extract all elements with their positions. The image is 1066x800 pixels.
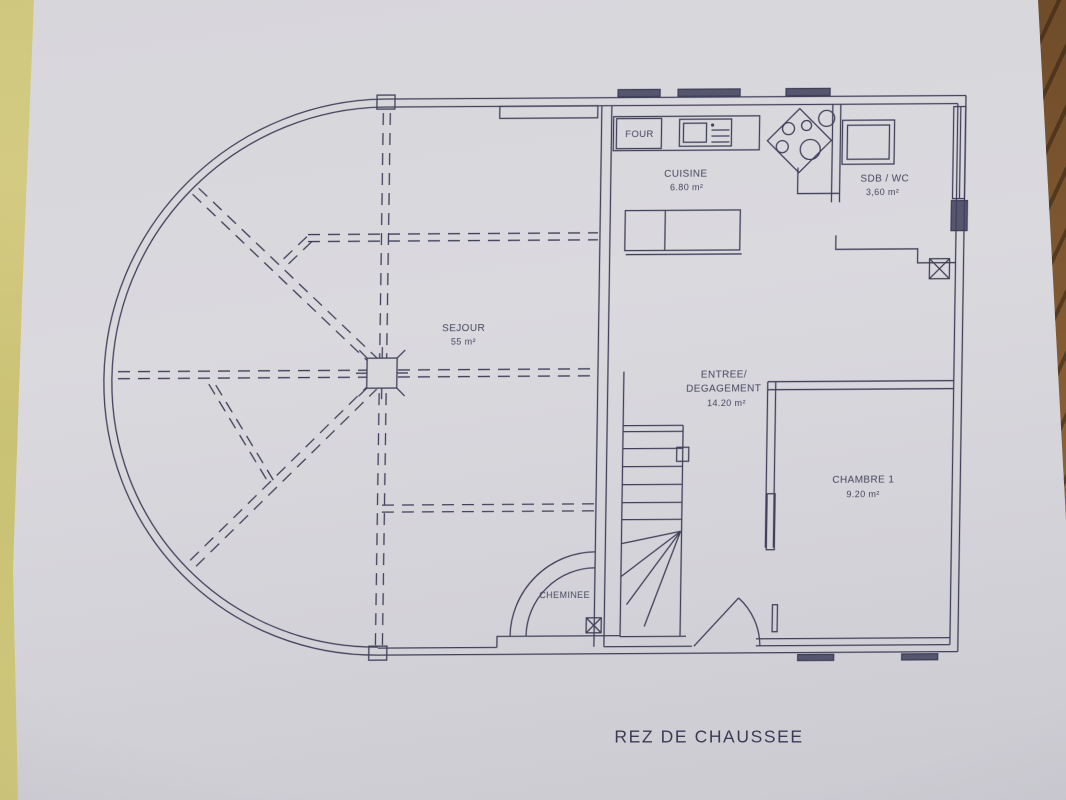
- room-label-sejour: SEJOUR: [442, 323, 485, 334]
- annotation-cheminee: CHEMINEE: [539, 590, 590, 600]
- kitchen-return-wall: [798, 167, 840, 193]
- shower-tray: [842, 120, 895, 164]
- bathroom-fixtures: [818, 110, 895, 164]
- kitchen-counter-low: [625, 210, 741, 251]
- room-label-cuisine: CUISINE: [664, 169, 708, 180]
- window-bar-bottom-2: [902, 654, 938, 660]
- interior-walls: [594, 104, 958, 647]
- staircase: [620, 371, 690, 636]
- window-bar-bottom-1: [798, 654, 834, 660]
- window-bar-top-1: [618, 89, 660, 96]
- annotation-four: FOUR: [625, 129, 654, 140]
- sink-icon: [679, 119, 731, 146]
- room-label-chambre1: CHAMBRE 1: [832, 474, 894, 485]
- beam-grid: [114, 112, 600, 647]
- room-area-cuisine: 6.80 m²: [670, 182, 703, 192]
- room-area-entree: 14.20 m²: [707, 398, 746, 408]
- doors: [694, 494, 779, 647]
- x-marker-right-wall: [929, 259, 949, 279]
- floor-plan-paper: SEJOUR 55 m² CUISINE 6.80 m² SDB / WC 3,…: [0, 0, 1066, 800]
- exterior-walls: [100, 92, 966, 662]
- right-wall-sill: [951, 201, 967, 231]
- central-post: [356, 347, 409, 399]
- room-area-chambre1: 9.20 m²: [846, 489, 879, 499]
- plan-title: REZ DE CHAUSSEE: [614, 727, 803, 748]
- photo-scene: SEJOUR 55 m² CUISINE 6.80 m² SDB / WC 3,…: [0, 0, 1066, 800]
- door-stop: [772, 605, 777, 632]
- room-label-entree-2: DEGAGEMENT: [686, 383, 761, 394]
- room-label-entree-1: ENTREE/: [701, 369, 747, 380]
- window-bar-top-2: [678, 89, 740, 96]
- floor-plan-drawing: [0, 0, 1066, 800]
- room-area-sejour: 55 m²: [451, 337, 476, 347]
- duct-markers: [586, 259, 950, 633]
- room-label-sdb-wc: SDB / WC: [860, 173, 909, 184]
- window-bar-top-3: [786, 88, 830, 95]
- hearth-step: [497, 636, 620, 648]
- top-wall-lintel: [500, 106, 598, 119]
- room-area-sdb-wc: 3,60 m²: [866, 187, 899, 197]
- floor-plan: SEJOUR 55 m² CUISINE 6.80 m² SDB / WC 3,…: [0, 0, 1066, 800]
- hob-icon: [767, 108, 832, 172]
